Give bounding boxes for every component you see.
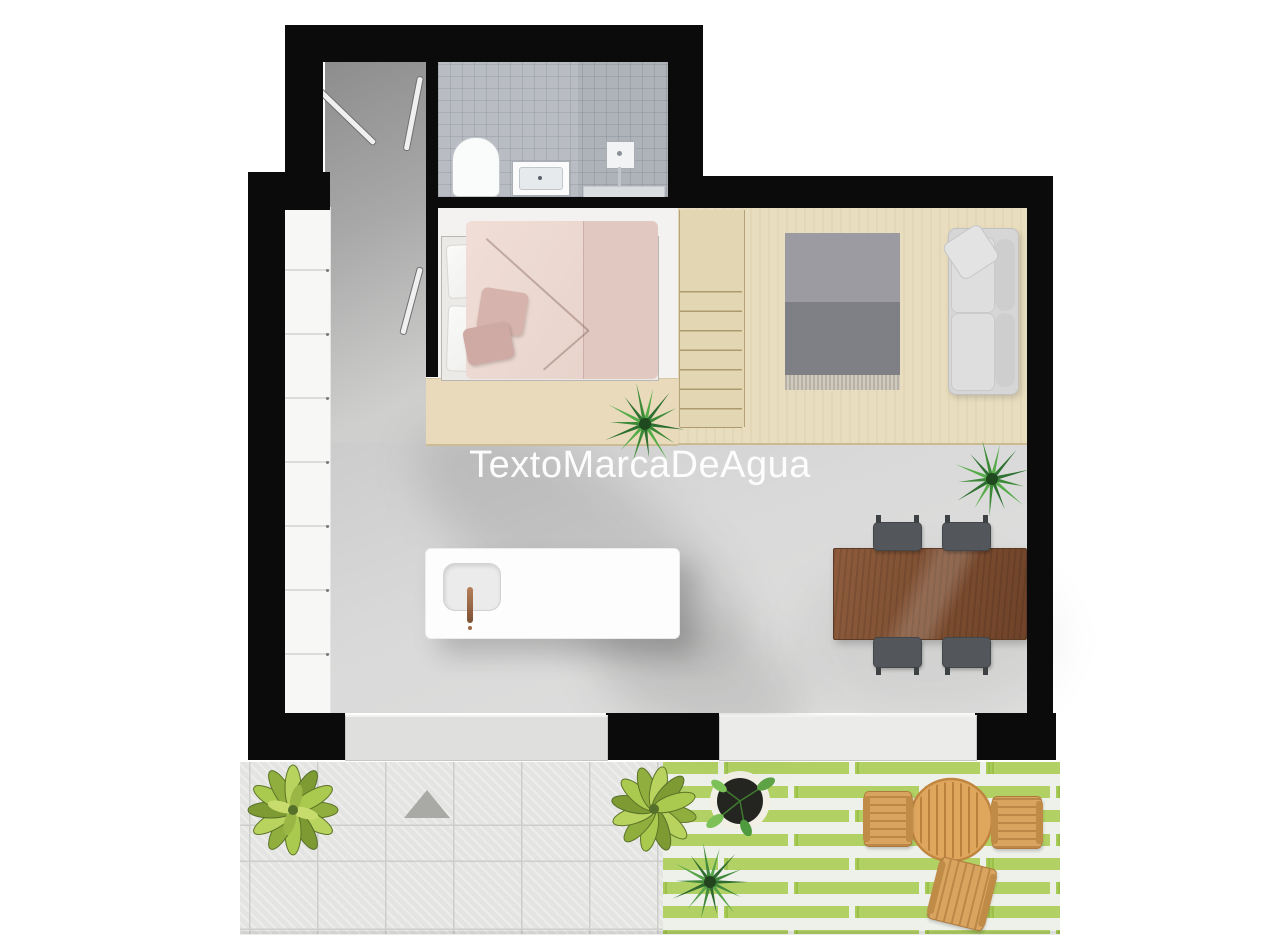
wall-top: [285, 25, 703, 62]
wall-bathroom-right: [668, 62, 703, 208]
outdoor-chair: [864, 791, 912, 847]
area-rug-dark-half: [785, 302, 900, 375]
floor-plan: TextoMarcaDeAgua: [0, 0, 1280, 940]
shrub-plant: [246, 764, 341, 856]
outdoor-round-table: [908, 776, 994, 864]
watermark-text: TextoMarcaDeAgua: [400, 444, 880, 487]
fern-plant: [946, 434, 1038, 524]
sofa: [948, 228, 1019, 395]
wall-bathroom-left: [426, 62, 438, 377]
area-rug: [785, 233, 900, 302]
potted-plant: [704, 766, 776, 836]
wall-bottom-middle: [606, 713, 719, 760]
sofa-back-cushion: [995, 239, 1015, 311]
area-rug-fringe: [785, 375, 900, 390]
bed-duvet-fold: [583, 221, 658, 379]
wardrobe-cabinets: [285, 207, 331, 713]
sofa-back-cushion: [995, 313, 1015, 387]
dining-chair: [873, 637, 922, 668]
shower-head-dot: [617, 151, 622, 156]
dining-chair: [942, 637, 991, 668]
sliding-door: [345, 715, 608, 761]
dining-chair: [942, 522, 991, 551]
wall-left: [248, 210, 285, 713]
wall-top-right: [668, 176, 1053, 208]
toilet: [452, 137, 500, 197]
wall-bottom-right: [975, 713, 1056, 760]
direction-triangle-icon: [403, 789, 451, 819]
dining-table: [833, 548, 1027, 640]
dining-chair: [873, 522, 922, 551]
wardrobe-handle-dots: [326, 269, 329, 272]
shower-zone: [578, 62, 668, 197]
terrace-edge-shadow: [240, 931, 1060, 935]
sliding-door: [719, 715, 977, 761]
faucet-spout-dot: [468, 626, 472, 630]
outdoor-chair: [992, 796, 1042, 849]
wall-bottom-left: [248, 713, 345, 760]
wall-below-bathroom: [426, 197, 678, 208]
sink-drain: [538, 176, 542, 180]
sofa-seat-cushion: [951, 313, 995, 391]
kitchen-faucet: [467, 587, 473, 623]
fern-plant: [666, 836, 754, 928]
wall-left-corner: [248, 172, 330, 210]
